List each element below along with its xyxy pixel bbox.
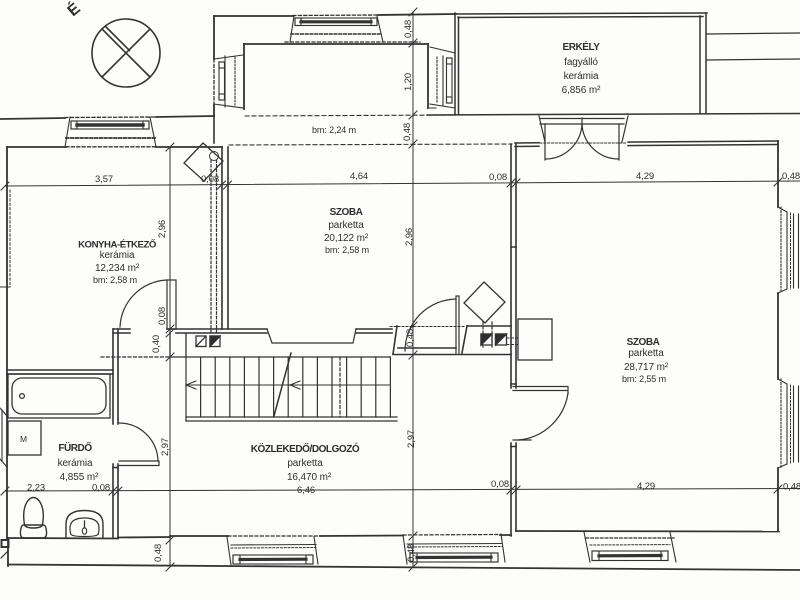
svg-text:0,40: 0,40 <box>151 335 162 353</box>
svg-text:bm: 2,24 m: bm: 2,24 m <box>312 125 356 135</box>
svg-text:kerámia: kerámia <box>564 71 599 82</box>
svg-text:4,64: 4,64 <box>350 171 368 182</box>
svg-text:kerámia: kerámia <box>58 458 93 469</box>
svg-text:KONYHA-ÉTKEZŐ: KONYHA-ÉTKEZŐ <box>78 239 157 251</box>
svg-text:2,23: 2,23 <box>27 483 45 494</box>
svg-text:parketta: parketta <box>287 458 323 469</box>
svg-text:16,470 m²: 16,470 m² <box>287 472 332 483</box>
svg-text:0,48: 0,48 <box>403 20 414 38</box>
svg-text:0,48: 0,48 <box>153 544 164 562</box>
svg-text:4,29: 4,29 <box>636 171 654 182</box>
svg-text:2,97: 2,97 <box>160 438 171 456</box>
svg-text:0,48: 0,48 <box>406 544 417 562</box>
svg-text:1,20: 1,20 <box>403 73 414 91</box>
svg-text:bm: 2,58 m: bm: 2,58 m <box>325 245 369 255</box>
svg-text:12,234 m²: 12,234 m² <box>95 263 140 274</box>
svg-text:SZOBA: SZOBA <box>330 207 363 218</box>
svg-text:0,08: 0,08 <box>157 307 168 325</box>
svg-text:0,08: 0,08 <box>489 172 507 183</box>
svg-text:28,717 m²: 28,717 m² <box>624 362 669 373</box>
svg-text:0,08: 0,08 <box>92 483 110 494</box>
svg-text:6,46: 6,46 <box>297 485 315 496</box>
svg-text:0,48: 0,48 <box>405 329 416 347</box>
svg-text:4,29: 4,29 <box>637 481 655 492</box>
svg-text:M: M <box>20 434 27 444</box>
svg-text:20,122 m²: 20,122 m² <box>324 233 369 244</box>
svg-text:bm: 2,58 m: bm: 2,58 m <box>93 275 137 285</box>
svg-text:bm: 2,55 m: bm: 2,55 m <box>622 374 666 384</box>
svg-text:parketta: parketta <box>628 348 664 359</box>
svg-text:0,48: 0,48 <box>402 123 413 141</box>
svg-text:3,57: 3,57 <box>95 174 113 185</box>
svg-text:kerámia: kerámia <box>100 250 135 261</box>
svg-text:parketta: parketta <box>328 220 364 231</box>
svg-text:2,96: 2,96 <box>157 220 168 238</box>
svg-text:4,855 m²: 4,855 m² <box>60 472 99 483</box>
svg-text:2,96: 2,96 <box>404 228 415 246</box>
svg-text:fagyálló: fagyálló <box>564 57 598 68</box>
svg-text:0,08: 0,08 <box>491 479 509 490</box>
svg-text:SZOBA: SZOBA <box>627 337 660 348</box>
svg-text:0,48: 0,48 <box>783 482 800 493</box>
svg-text:ERKÉLY: ERKÉLY <box>563 40 601 53</box>
svg-text:2,97: 2,97 <box>406 430 417 448</box>
svg-text:0,48: 0,48 <box>782 171 800 182</box>
svg-text:FÜRDŐ: FÜRDŐ <box>58 441 92 454</box>
svg-text:KÖZLEKEDŐ/DOLGOZÓ: KÖZLEKEDŐ/DOLGOZÓ <box>251 442 360 455</box>
svg-text:6,856 m²: 6,856 m² <box>562 85 601 96</box>
svg-text:0,08: 0,08 <box>201 174 219 185</box>
